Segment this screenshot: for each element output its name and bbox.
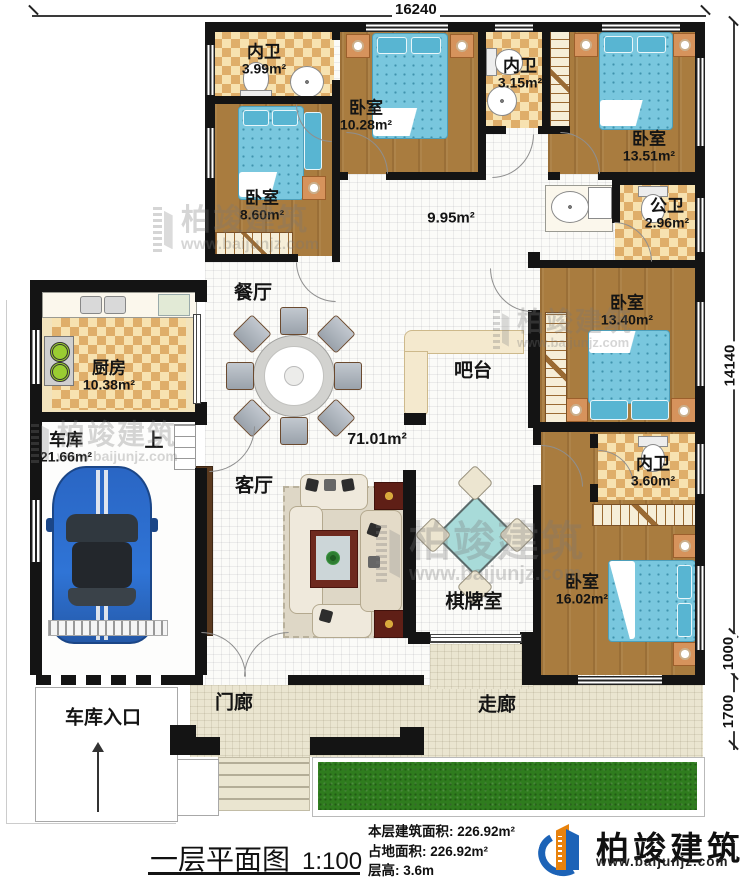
room-name: 内卫 [631, 455, 675, 474]
room-label-bed-top-right: 卧室 13.51m² [623, 130, 675, 165]
brand-logo-icon [542, 824, 590, 874]
garage-entrance-label: 车库入口 [65, 707, 141, 728]
room-area: 3.15m² [498, 76, 542, 92]
deco-cabinet [374, 482, 404, 510]
wall [288, 675, 424, 685]
wall [386, 172, 482, 180]
room-name: 吧台 [454, 360, 492, 381]
nightstand [450, 34, 474, 58]
room-name: 厨房 [83, 359, 135, 378]
kitchen-sink-icon [104, 296, 126, 314]
room-name: 卧室 [601, 294, 653, 313]
wall [404, 413, 426, 425]
room-label-bath-top-mid: 内卫 3.15m² [498, 57, 542, 92]
room-area: 8.60m² [240, 208, 284, 224]
room-label-living: 客厅 [235, 475, 273, 496]
wall [195, 402, 207, 425]
room-name: 门廊 [215, 692, 253, 713]
room-name: 棋牌室 [445, 591, 502, 612]
dining-chair [226, 362, 254, 390]
wall [528, 310, 540, 428]
room-name: 车库 [40, 431, 92, 450]
wall [590, 434, 598, 448]
bed-sheet [589, 331, 667, 353]
bed-pillow [677, 603, 692, 637]
sliding-door [430, 634, 522, 643]
kitchen-sliding-door [193, 314, 201, 404]
wall [332, 22, 340, 40]
room-area: 21.66m² [40, 450, 92, 466]
dimension-right-height: 14140 [721, 342, 738, 390]
wall [533, 675, 578, 685]
wall [42, 412, 195, 422]
porch-steps [218, 757, 310, 811]
floor-plan-sheet: 内卫 3.99m² 卧室 10.28m² 内卫 3.15m² 卧室 13.51m… [0, 0, 750, 885]
bed-sheet [600, 100, 670, 126]
bed-pillow [243, 110, 269, 126]
wall [612, 185, 620, 223]
room-name: 餐厅 [234, 282, 272, 303]
wall [533, 422, 697, 432]
wall [484, 126, 506, 134]
driveway-arrow-icon [92, 742, 104, 814]
room-label-corridor: 走廊 [478, 694, 516, 715]
kitchen-sink-icon [80, 296, 102, 314]
car-mirror [150, 518, 158, 532]
window [31, 500, 41, 562]
bar-counter [404, 351, 428, 415]
logo-tower-blue [566, 829, 579, 870]
room-name: 卧室 [623, 130, 675, 149]
room-label-dining: 餐厅 [234, 282, 272, 303]
room-area: 13.40m² [601, 313, 653, 329]
sink-icon [290, 66, 324, 98]
wall [205, 254, 298, 262]
arrow-shaft [97, 750, 99, 812]
sofa-pillow [368, 556, 380, 568]
stat-height: 层高: 3.6m [368, 861, 515, 881]
window [578, 676, 662, 685]
room-label-garage: 车库 21.66m² [40, 431, 92, 466]
stove-burner [50, 362, 70, 382]
nightstand [574, 33, 598, 57]
site-boundary-line-bottom [6, 823, 176, 824]
room-label-bath-top-left: 内卫 3.99m² [242, 43, 286, 78]
room-label-bed-top: 卧室 10.28m² [340, 99, 392, 134]
room-name: 公卫 [645, 197, 689, 216]
bed-cushion [631, 400, 669, 420]
room-name: 走廊 [478, 694, 516, 715]
living-area-label: 71.01m² [347, 431, 407, 449]
sofa-pillow [324, 479, 336, 491]
wall [30, 280, 207, 292]
bed-pillow [411, 37, 441, 54]
garage-grate [48, 620, 168, 636]
room-label-bath-right: 内卫 3.60m² [631, 455, 675, 490]
fridge-icon [158, 294, 190, 316]
corridor-notch-floor [430, 644, 533, 689]
wardrobe [592, 504, 698, 526]
wall [612, 176, 697, 185]
lawn [318, 762, 697, 810]
window [696, 198, 705, 252]
car-roof [72, 542, 132, 588]
wall [548, 172, 560, 180]
porch-corridor-floor [190, 685, 703, 757]
room-area: 10.28m² [340, 118, 392, 134]
room-label-game-room: 棋牌室 [445, 591, 502, 612]
dimension-tick [28, 5, 39, 16]
room-name: 卧室 [340, 99, 392, 118]
room-name: 卧室 [556, 573, 608, 592]
room-label-bed-right: 卧室 13.40m² [601, 294, 653, 329]
dining-chair [280, 307, 308, 335]
dining-chair [334, 362, 362, 390]
arrow-head [92, 742, 104, 752]
watermark-logo-icon [140, 206, 174, 252]
stairs-up-label: 上 [144, 430, 163, 451]
room-label-bed-bottom-right: 卧室 16.02m² [556, 573, 608, 608]
room-area: 13.51m² [623, 149, 675, 165]
dimension-tick [700, 5, 711, 16]
wardrobe [545, 312, 567, 424]
window [495, 23, 533, 32]
car-windshield [66, 514, 138, 542]
wall [542, 22, 550, 134]
room-label-porch: 门廊 [215, 692, 253, 713]
car-icon [52, 466, 152, 644]
plan-stats: 本层建筑面积: 226.92m² 占地面积: 226.92m² 层高: 3.6m [368, 822, 515, 881]
room-area: 10.38m² [83, 378, 135, 394]
bed-pillow [377, 37, 407, 54]
room-area: 3.60m² [631, 474, 675, 490]
plant-icon [326, 551, 340, 565]
stair-treads [174, 424, 196, 470]
wall [590, 484, 598, 502]
wall [533, 428, 541, 445]
dimension-right-1700: 1700 [720, 692, 737, 731]
room-name: 上 [144, 430, 163, 451]
room-label-bed-left: 卧室 8.60m² [240, 189, 284, 224]
dimension-right-1000: 1000 [720, 634, 737, 673]
washing-machine-icon [588, 187, 612, 219]
bed-pillow [677, 565, 692, 599]
nightstand [673, 33, 697, 57]
dining-table-center [284, 366, 304, 386]
wall [533, 485, 541, 675]
bed-pillow [637, 36, 666, 53]
wardrobe [550, 31, 570, 131]
logo-windows [558, 836, 562, 862]
room-label-kitchen: 厨房 10.38m² [83, 359, 135, 394]
wall [403, 470, 416, 638]
deco-cabinet [374, 610, 404, 638]
brand-website: www.baijunjz.com [596, 854, 729, 869]
dimension-top-width: 16240 [392, 1, 440, 18]
wall [212, 96, 334, 104]
title-underline [148, 872, 360, 875]
window [206, 45, 215, 95]
room-name: 车库入口 [65, 707, 141, 728]
stove-burner [50, 342, 70, 362]
bed-cushion [590, 400, 628, 420]
porch-pillar [196, 737, 220, 755]
wardrobe [215, 232, 293, 255]
porch-pillar [170, 725, 196, 755]
room-name: 内卫 [498, 57, 542, 76]
dining-chair [280, 417, 308, 445]
sink-icon [551, 191, 589, 223]
nightstand [346, 34, 370, 58]
site-boundary-line [6, 300, 7, 824]
wall [332, 80, 340, 262]
wall [167, 675, 203, 685]
room-name: 卧室 [240, 189, 284, 208]
stat-land-area: 占地面积: 226.92m² [368, 842, 515, 862]
room-area: 3.99m² [242, 62, 286, 78]
window [696, 566, 705, 650]
nightstand [673, 534, 697, 558]
window [366, 23, 448, 32]
bed-pillow [604, 36, 633, 53]
nightstand [671, 398, 697, 424]
hallway-area-label: 9.95m² [427, 211, 475, 228]
garage-door-dashed [36, 675, 167, 685]
sofa-pillow [305, 478, 319, 492]
window [206, 128, 215, 178]
bed-pillow [272, 110, 298, 126]
nightstand [673, 642, 697, 666]
wall [528, 252, 540, 268]
room-area: 9.95m² [427, 211, 475, 228]
sofa-pillow [341, 478, 355, 492]
room-area: 71.01m² [347, 431, 407, 449]
chaise [360, 510, 402, 612]
stat-floor-area: 本层建筑面积: 226.92m² [368, 822, 515, 842]
nightstand [302, 176, 326, 200]
window [31, 330, 41, 384]
car-rear-window [68, 588, 136, 606]
window [696, 302, 705, 386]
window [602, 23, 680, 32]
room-name: 客厅 [235, 475, 273, 496]
wall [195, 292, 207, 302]
wall [528, 260, 697, 268]
wall [662, 675, 705, 685]
window [696, 444, 705, 494]
window [696, 58, 705, 146]
bed-sheet [609, 561, 635, 639]
room-area: 16.02m² [556, 592, 608, 608]
room-area: 2.96m² [645, 216, 689, 232]
car-mirror [46, 518, 54, 532]
room-label-bar: 吧台 [454, 360, 492, 381]
wall [408, 632, 430, 644]
dimension-line-top [32, 15, 706, 17]
porch-pillar [400, 727, 424, 755]
room-label-bath-public: 公卫 2.96m² [645, 197, 689, 232]
planter-box [177, 759, 219, 816]
room-name: 内卫 [242, 43, 286, 62]
wall [478, 22, 486, 180]
nightstand [564, 398, 588, 422]
